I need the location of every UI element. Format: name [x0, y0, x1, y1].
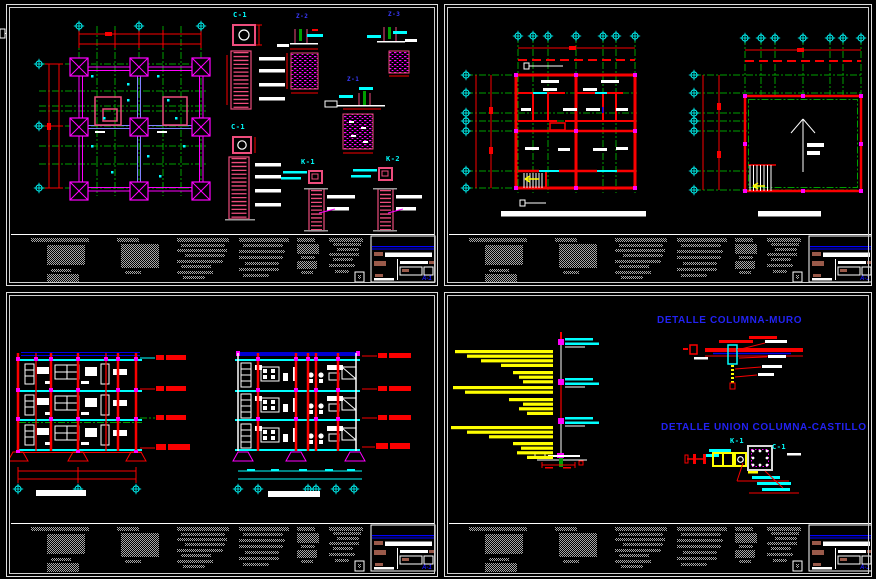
detail-label-c1-top: C-1	[233, 11, 247, 19]
section-left-title-bar	[36, 490, 86, 496]
left-plan-dimensions	[476, 46, 635, 188]
left-plan-stairs	[524, 173, 542, 188]
detail-union-columna-castillo	[685, 446, 801, 493]
detail-label-z1: Z-1	[347, 76, 359, 83]
notes-strip	[11, 234, 435, 283]
grid-bubbles	[34, 21, 206, 193]
detail-z1	[325, 87, 385, 153]
detail-label-z2: Z-2	[296, 13, 308, 20]
detail-label-z3: Z-3	[388, 11, 400, 18]
details-drawing	[447, 295, 871, 576]
detail-c1-mid	[225, 137, 281, 221]
detail-k2	[351, 168, 422, 232]
detail-title-columna-muro: DETALLE COLUMNA-MURO	[657, 315, 802, 326]
left-plan-title-bar	[501, 211, 646, 217]
notes-strip	[449, 234, 871, 283]
section-right-levels	[362, 353, 411, 449]
section-left	[9, 353, 190, 497]
roof-plan-bubbles	[689, 33, 866, 195]
foundation-walls	[70, 58, 210, 200]
sheet-foundation-details: C-1 Z-2 Z-3 Z-1 C-1 K-1 K-2	[6, 4, 438, 286]
castillo-footing	[535, 453, 587, 469]
sheet-floor-plans	[444, 4, 872, 286]
notes-strip	[449, 523, 871, 572]
sheet-column-details: DETALLE COLUMNA-MURO DETALLE UNION COLUM…	[444, 292, 872, 577]
castillo-elevation	[451, 332, 599, 469]
detail-k1	[281, 171, 355, 232]
detail-z3	[367, 27, 417, 76]
notes-strip	[11, 523, 435, 572]
detail-label-k2: K-2	[386, 155, 400, 163]
castillo-slabs	[565, 338, 599, 427]
cad-paper-space: A-1	[0, 0, 876, 579]
sheet-building-sections	[6, 292, 438, 577]
section-left-footings	[9, 452, 146, 461]
roof-plan-dimensions	[703, 48, 861, 190]
roof-plan-arrow	[791, 119, 824, 172]
section-left-levels	[140, 355, 190, 450]
left-plan-bubbles	[461, 31, 640, 193]
section-right	[233, 351, 411, 497]
green-grid	[39, 26, 207, 196]
roof-plan-title-bar	[758, 211, 821, 217]
sections-drawing	[9, 295, 437, 576]
detail-label-c1-mid: C-1	[231, 123, 245, 131]
left-plan-markers	[501, 63, 646, 217]
castillo-annotations	[451, 350, 553, 459]
detail-title-union-columna-castillo: DETALLE UNION COLUMNA-CASTILLO	[661, 422, 867, 433]
section-right-footings	[233, 452, 365, 461]
detail-label-c1: C-1	[772, 443, 786, 451]
detail-columna-muro	[683, 336, 803, 389]
detail-label-k1: K-1	[301, 158, 315, 166]
plans-drawing	[447, 7, 871, 285]
detail-c1-top	[227, 25, 285, 109]
section-right-title-bar	[268, 491, 320, 497]
detail-label-k1: K-1	[730, 437, 744, 445]
section-right-dims	[233, 469, 362, 494]
foundation-drawing	[9, 7, 437, 285]
